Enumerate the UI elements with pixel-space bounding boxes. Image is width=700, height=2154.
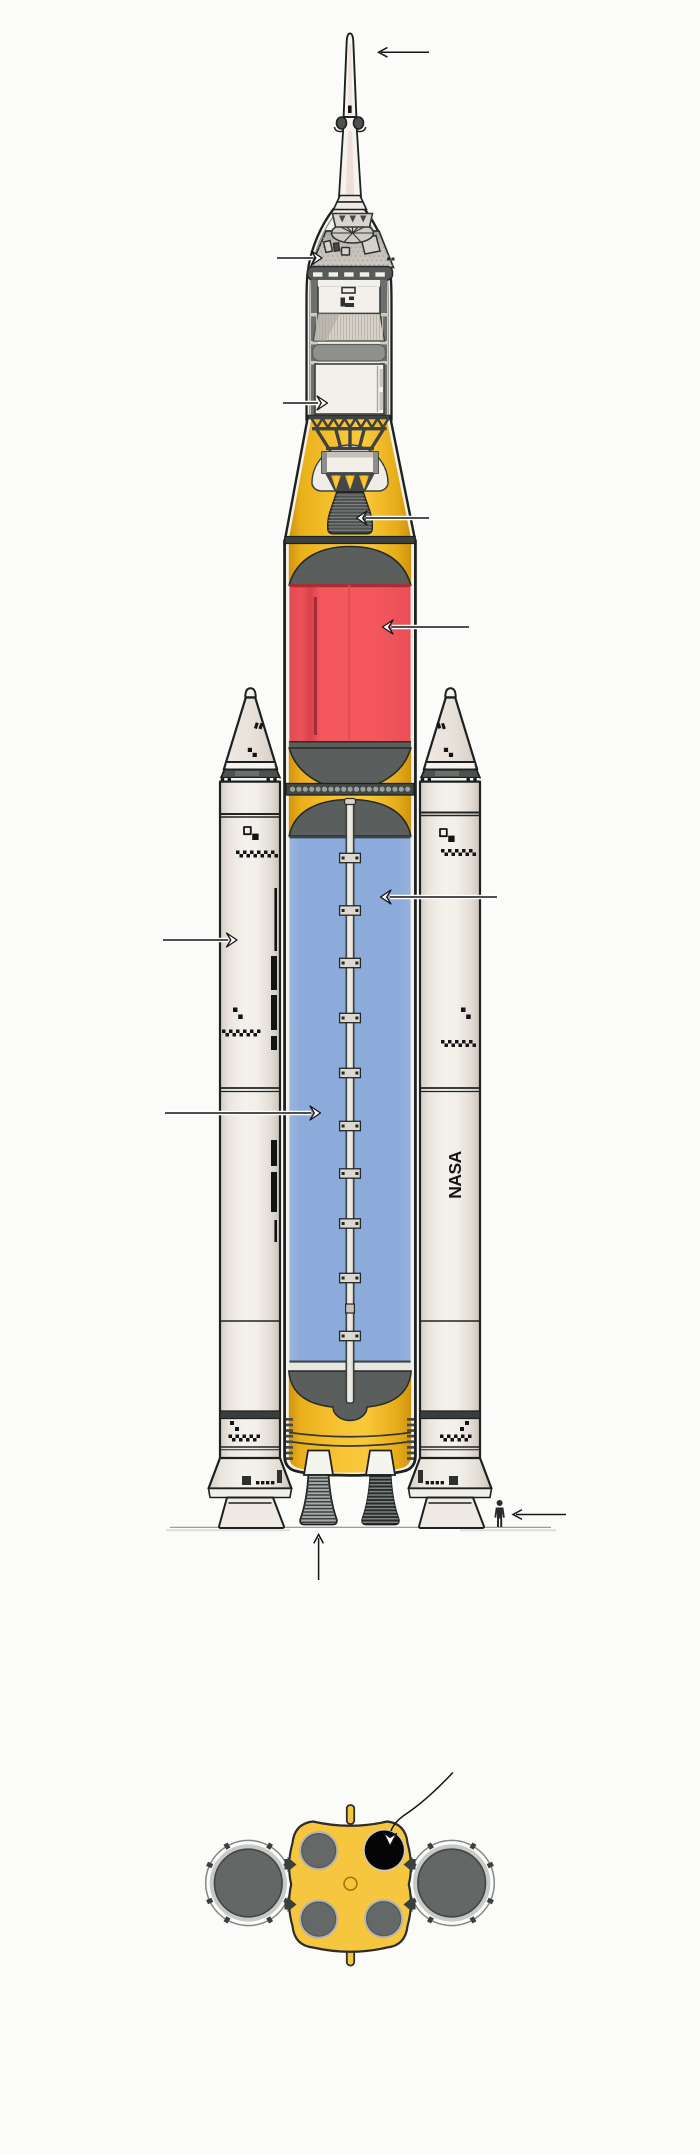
svg-text:NASA: NASA [445, 1150, 465, 1198]
